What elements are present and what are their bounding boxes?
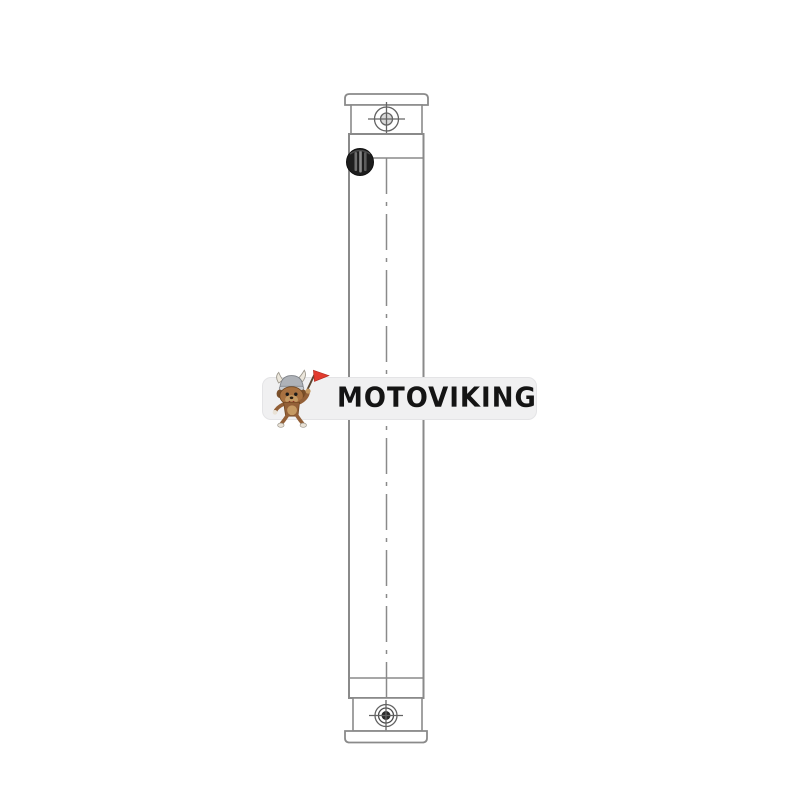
product-image: MOTOVIKING <box>0 0 800 800</box>
watermark-band: MOTOVIKING <box>262 377 537 420</box>
viking-dog-with-red-flag-icon <box>267 366 331 430</box>
filler-cap-icon <box>347 149 374 176</box>
bottom-mounting-flange <box>345 731 427 743</box>
brand-wordmark: MOTOVIKING <box>337 377 537 420</box>
